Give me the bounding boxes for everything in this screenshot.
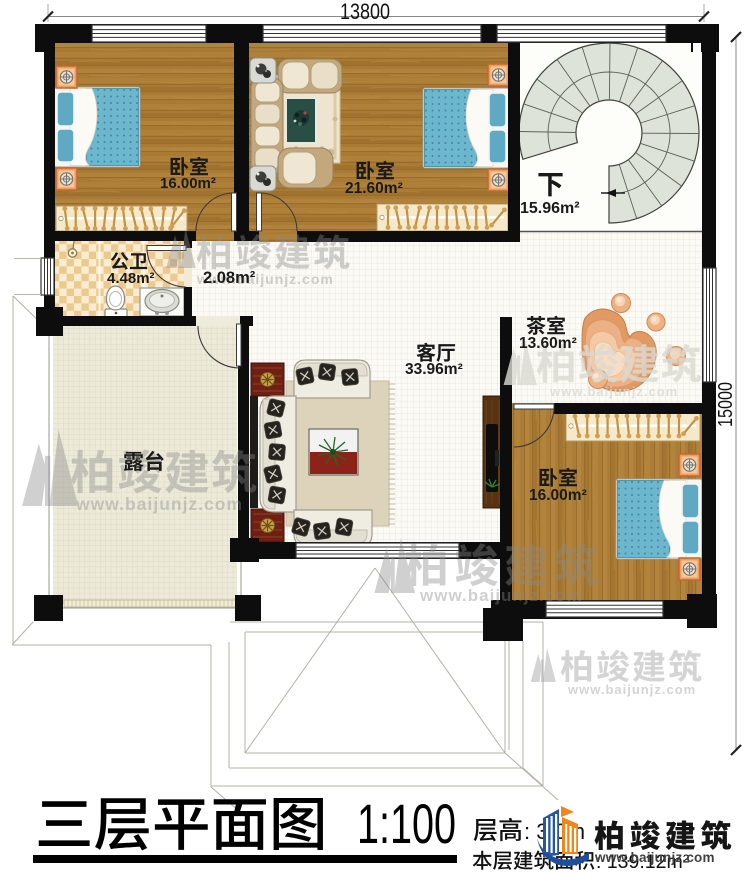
svg-text:16.00m²: 16.00m² [160,175,216,192]
svg-text:16.00m²: 16.00m² [529,487,587,504]
svg-text:www.baijunjz.com: www.baijunjz.com [75,494,243,514]
svg-text:www.baijunjz.com: www.baijunjz.com [549,384,678,399]
svg-text:2.08m²: 2.08m² [203,269,256,287]
svg-text:21.60m²: 21.60m² [345,180,403,197]
svg-text:www.baijunjz.com: www.baijunjz.com [419,586,583,605]
svg-text:1:100: 1:100 [357,792,456,855]
svg-text:www.baijunjz.com: www.baijunjz.com [594,850,715,865]
svg-text:www.baijunjz.com: www.baijunjz.com [567,682,696,697]
svg-text:13800: 13800 [340,0,390,24]
svg-text:4.48m²: 4.48m² [107,270,155,287]
svg-text:33.96m²: 33.96m² [405,361,463,378]
svg-text:15000: 15000 [715,382,737,427]
svg-text:13.60m²: 13.60m² [519,335,577,352]
svg-text:15.96m²: 15.96m² [520,200,580,217]
